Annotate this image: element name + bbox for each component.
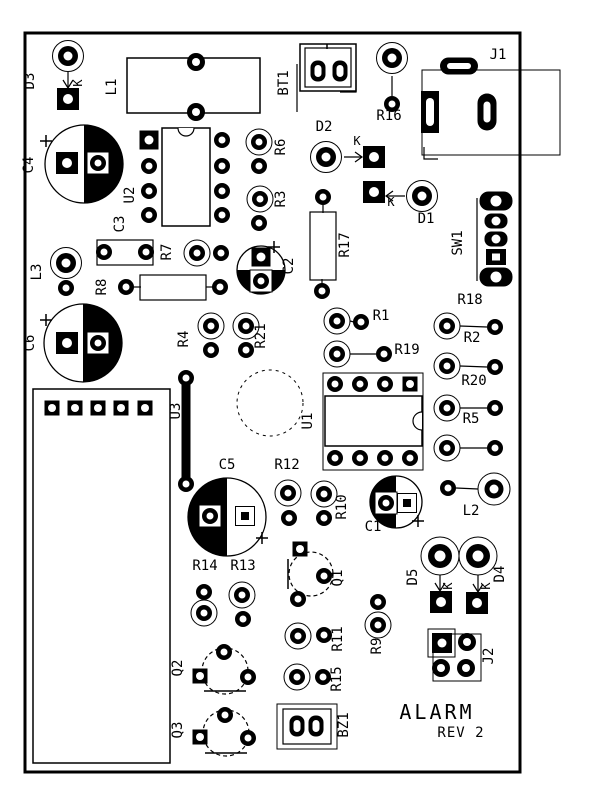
r17-body-outline (310, 212, 336, 280)
pad-hole (295, 596, 302, 603)
label-r8: R8 (94, 279, 110, 296)
label-r5: R5 (463, 411, 480, 427)
label-r2: R2 (464, 330, 481, 346)
label-c3: C3 (112, 216, 128, 233)
label-r12: R12 (274, 457, 299, 473)
pad-r13 (229, 582, 255, 608)
pad-hole (222, 712, 229, 719)
pad-r4 (203, 342, 219, 358)
label-d4: D4 (492, 566, 508, 583)
pad-hole (319, 288, 326, 295)
pad-hole (63, 285, 70, 292)
pad-hole (473, 551, 484, 562)
pad-r6 (246, 129, 272, 155)
pad-hole (258, 278, 265, 285)
c4-capacitor-body (40, 125, 123, 203)
pad-hole (332, 455, 339, 462)
label-u1: U1 (300, 413, 316, 430)
label-k: K (71, 79, 85, 87)
label-u3: U3 (168, 403, 184, 420)
pad-hole (219, 137, 226, 144)
pad-q1 (293, 542, 308, 557)
pad-hole (438, 639, 447, 648)
pad-hole (321, 491, 328, 498)
label-r10: R10 (334, 494, 350, 519)
pad-hole (95, 160, 102, 167)
pad-sw1 (486, 249, 506, 265)
pad-r8 (212, 279, 228, 295)
label-l3: L3 (29, 264, 45, 281)
u1-notch (413, 412, 422, 430)
pad-hole (63, 94, 73, 104)
pad-hole (383, 500, 390, 507)
pad-q2 (193, 669, 208, 684)
pad-hole (219, 163, 226, 170)
pad-hole (257, 253, 266, 262)
pad-u1 (327, 376, 343, 392)
r20-lead (460, 366, 487, 367)
pad-r1 (324, 308, 350, 334)
pad-hole (444, 445, 451, 452)
pad-r20 (434, 353, 460, 379)
label-r11: R11 (330, 626, 346, 651)
pcb-svg: D3KL1BT1J1R16D2KKD1SW1R18C4U2C3R6R3R7R17… (0, 0, 601, 796)
pad-relay (45, 401, 60, 416)
pad-hole (484, 102, 491, 123)
pad-hole (256, 139, 263, 146)
pad-hole (294, 720, 301, 732)
pad-d5 (421, 537, 459, 575)
pad-hole (245, 735, 252, 742)
pad-c2 (250, 270, 272, 292)
bz1-outer-outline (277, 704, 337, 749)
pad-j1 (478, 94, 497, 131)
j1-corner-mark (424, 147, 438, 159)
pad-c4 (56, 152, 78, 174)
r8-body-outline (140, 275, 206, 300)
label-c6: C6 (22, 335, 38, 352)
pad-j2 (458, 633, 476, 651)
pad-c6 (87, 332, 109, 354)
pad-hole (436, 597, 446, 607)
pad-j1 (421, 91, 439, 133)
pad-r2 (434, 313, 460, 339)
pad-sw1 (485, 232, 508, 247)
pad-hole (389, 101, 396, 108)
pad-bt1 (311, 61, 326, 82)
pad-hole (315, 65, 322, 77)
pad-q2 (240, 669, 256, 685)
pad-u3 (178, 476, 194, 492)
label-r14: R14 (192, 558, 217, 574)
bt1-outer-outline (300, 44, 356, 91)
pad-q3 (240, 730, 256, 746)
pad-hole (445, 485, 452, 492)
r2-lead (460, 326, 487, 327)
pad-u2 (141, 207, 157, 223)
pad-r12 (275, 480, 301, 506)
pad-d5 (430, 591, 452, 613)
pad-hole (321, 515, 328, 522)
pad-l3 (51, 248, 82, 279)
pad-r7 (184, 240, 210, 266)
pad-r21 (238, 342, 254, 358)
label-k: K (479, 582, 493, 590)
pad-hole (369, 152, 379, 162)
label-d1: D1 (418, 211, 435, 227)
pad-hole (256, 163, 263, 170)
pad-r5 (487, 400, 503, 416)
label-j1: J1 (490, 47, 507, 63)
pad-hole (183, 375, 190, 382)
pad-hole (382, 381, 389, 388)
label-r18: R18 (457, 292, 482, 308)
pad-sw1 (485, 214, 508, 229)
label-l1: L1 (104, 79, 120, 96)
pad-relay (91, 401, 106, 416)
pad-r16 (377, 43, 408, 74)
pad-hole (218, 250, 225, 257)
pad-hole (196, 672, 204, 680)
pad-hole (243, 323, 250, 330)
pad-bz1 (309, 716, 324, 737)
pad-hole (64, 52, 73, 61)
pad-hole (462, 664, 470, 672)
pad-hole (256, 220, 263, 227)
pad-hole (123, 284, 130, 291)
pad-hole (337, 65, 344, 77)
label-r19: R19 (394, 342, 419, 358)
pad-r-extra (434, 435, 460, 461)
pad-c5 (236, 507, 255, 526)
label-q2: Q2 (170, 660, 186, 677)
pad-hole (141, 404, 149, 412)
pad-hole (490, 485, 499, 494)
pad-hole (240, 616, 247, 623)
pad-q3 (217, 707, 233, 723)
pad-d3 (57, 88, 79, 110)
pad-c2 (252, 248, 271, 267)
pad-c5 (199, 505, 221, 527)
pad-hole (208, 347, 215, 354)
pad-c4 (87, 152, 109, 174)
pad-hole (62, 338, 72, 348)
pad-u1 (377, 450, 393, 466)
pad-r1 (353, 314, 369, 330)
pad-hole (491, 272, 502, 283)
pad-hole (313, 720, 320, 732)
pad-hole (375, 622, 382, 629)
pad-relay (138, 401, 153, 416)
pad-hole (426, 98, 434, 126)
pad-body (241, 512, 249, 520)
bt1-corner-mark (340, 80, 356, 92)
pad-hole (492, 254, 500, 261)
pad-hole (95, 340, 102, 347)
pad-hole (321, 632, 328, 639)
label-c1: C1 (365, 519, 382, 535)
pad-bz1 (290, 716, 305, 737)
pad-hole (239, 592, 246, 599)
pad-hole (257, 196, 264, 203)
u2-notch (178, 128, 194, 136)
pad-sw1 (480, 192, 513, 211)
pad-hole (472, 598, 482, 608)
pad-hole (201, 589, 208, 596)
label-sw1: SW1 (450, 230, 466, 255)
pad-hole (295, 633, 302, 640)
pad-j2 (432, 633, 452, 653)
label-d5: D5 (405, 569, 421, 586)
pad-hole (296, 545, 304, 553)
pad-hole (447, 63, 471, 69)
label-c5: C5 (219, 457, 236, 473)
pad-q1 (290, 591, 306, 607)
label-k: K (441, 582, 455, 590)
pad-d1 (363, 181, 385, 203)
pad-u2 (214, 207, 230, 223)
pad-hole (334, 318, 341, 325)
pad-u1 (352, 376, 368, 392)
pad-r10 (316, 510, 332, 526)
pad-hole (358, 319, 365, 326)
c6-capacitor-body (40, 304, 122, 382)
pad-u3 (178, 370, 194, 386)
pad-hole (208, 323, 215, 330)
pad-r7 (213, 245, 229, 261)
pad-hole (48, 404, 56, 412)
pad-hole (194, 250, 201, 257)
pad-r-extra (487, 440, 503, 456)
pad-hole (321, 573, 328, 580)
pad-hole (437, 664, 445, 672)
label-l2: L2 (463, 503, 480, 519)
pad-hole (406, 380, 414, 388)
pad-hole (192, 58, 200, 66)
pad-hole (369, 187, 379, 197)
pad-hole (418, 192, 427, 201)
pad-d4 (466, 592, 488, 614)
pad-relay (114, 401, 129, 416)
pad-hole (62, 158, 72, 168)
pad-hole (219, 212, 226, 219)
pad-u1 (327, 450, 343, 466)
label-r15: R15 (329, 666, 345, 691)
label-r21: R21 (253, 323, 269, 348)
pad-u2 (214, 132, 230, 148)
pad-r14 (191, 600, 217, 626)
pad-hole (407, 455, 414, 462)
pad-hole (286, 515, 293, 522)
pad-r2 (487, 319, 503, 335)
pad-hole (375, 599, 382, 606)
pad-q2 (216, 644, 232, 660)
pad-u1 (352, 450, 368, 466)
pad-u2 (141, 158, 157, 174)
pad-u1 (403, 377, 418, 392)
pad-hole (320, 674, 327, 681)
pad-r14 (196, 584, 212, 600)
pad-d2 (363, 146, 385, 168)
pad-hole (492, 324, 499, 331)
pad-hole (146, 188, 153, 195)
label-bt1: BT1 (276, 70, 292, 95)
pad-hole (71, 404, 79, 412)
pad-hole (196, 733, 204, 741)
pad-l2 (440, 480, 456, 496)
pad-hole (192, 108, 200, 116)
u2-body-outline (162, 128, 210, 226)
relay-body-outline (33, 389, 170, 763)
label-q3: Q3 (170, 722, 186, 739)
pad-r5 (434, 395, 460, 421)
pad-hole (492, 217, 501, 226)
pad-hole (444, 363, 451, 370)
label-k: K (387, 195, 395, 209)
pad-hole (207, 513, 214, 520)
label-r1: R1 (373, 308, 390, 324)
label-r6: R6 (273, 139, 289, 156)
pad-hole (492, 405, 499, 412)
pad-hole (334, 351, 341, 358)
label-r3: R3 (273, 191, 289, 208)
pad-r19 (324, 341, 350, 367)
pad-r4 (198, 313, 224, 339)
pad-c3 (138, 244, 154, 260)
pad-hole (94, 404, 102, 412)
label-j2: J2 (481, 648, 497, 665)
pad-r13 (235, 611, 251, 627)
u1-body-outline (325, 396, 422, 446)
pad-hole (117, 404, 125, 412)
pad-hole (201, 610, 208, 617)
label-rev-2: REV 2 (437, 725, 484, 741)
pad-u2 (141, 183, 157, 199)
label-c4: C4 (21, 157, 37, 174)
pad-hole (143, 249, 150, 256)
pad-hole (357, 381, 364, 388)
pad-hole (219, 188, 226, 195)
pad-c1 (375, 492, 397, 514)
pad-c6 (56, 332, 78, 354)
label-r20: R20 (461, 373, 486, 389)
pad-hole (245, 674, 252, 681)
pad-hole (492, 364, 499, 371)
pad-hole (294, 674, 301, 681)
pad-hole (145, 136, 154, 145)
pad-hole (382, 455, 389, 462)
pad-hole (381, 351, 388, 358)
pad-hole (146, 163, 153, 170)
pad-l2 (478, 473, 510, 505)
pad-u1 (377, 376, 393, 392)
pad-hole (183, 481, 190, 488)
pad-q3 (193, 730, 208, 745)
pad-r19 (376, 346, 392, 362)
pad-hole (243, 347, 250, 354)
pad-r9 (370, 594, 386, 610)
pad-d3 (53, 41, 84, 72)
pad-hole (285, 490, 292, 497)
pad-hole (357, 455, 364, 462)
pad-j2 (432, 659, 450, 677)
l2-lead (456, 488, 478, 489)
label-d2: D2 (316, 119, 333, 135)
u1-ghost-circle (237, 370, 303, 436)
pad-hole (492, 235, 501, 244)
pad-hole (146, 212, 153, 219)
pad-d2 (311, 142, 342, 173)
pad-hole (322, 153, 331, 162)
pad-r18 (480, 268, 513, 287)
pad-r17 (315, 189, 331, 205)
pad-r20 (487, 359, 503, 375)
pad-hole (101, 249, 108, 256)
label-r17: R17 (337, 232, 353, 257)
label-c2: C2 (281, 258, 297, 275)
pad-hole (491, 196, 502, 207)
pad-hole (444, 405, 451, 412)
pad-relay (68, 401, 83, 416)
pad-c1 (398, 494, 417, 513)
pad-u2 (140, 131, 159, 150)
pad-j1 (440, 58, 478, 75)
pad-u1 (402, 450, 418, 466)
pad-hole (463, 638, 471, 646)
label-r13: R13 (230, 558, 255, 574)
pad-u2 (214, 183, 230, 199)
pcb-layout: D3KL1BT1J1R16D2KKD1SW1R18C4U2C3R6R3R7R17… (0, 0, 601, 796)
label-r9: R9 (369, 638, 385, 655)
pad-r11 (285, 623, 311, 649)
pad-r3 (247, 186, 273, 212)
pad-hole (435, 551, 446, 562)
label-d3: D3 (22, 73, 38, 90)
label-u2: U2 (122, 187, 138, 204)
pad-c3 (96, 244, 112, 260)
pad-hole (221, 649, 228, 656)
pad-body (403, 499, 411, 507)
pad-l1 (187, 53, 205, 71)
pad-hole (388, 54, 397, 63)
pad-j2 (457, 659, 475, 677)
pad-r17 (314, 283, 330, 299)
pad-hole (332, 381, 339, 388)
pad-r6 (251, 158, 267, 174)
pad-l3 (58, 280, 74, 296)
pad-r3 (251, 215, 267, 231)
label-r7: R7 (159, 244, 175, 261)
pad-hole (444, 323, 451, 330)
pad-r12 (281, 510, 297, 526)
pad-r9 (365, 612, 391, 638)
pad-r15 (284, 664, 310, 690)
label-bz1: BZ1 (336, 712, 352, 737)
pad-r8 (118, 279, 134, 295)
pad-hole (492, 445, 499, 452)
label-k: K (353, 134, 361, 148)
label-r16: R16 (376, 108, 401, 124)
pad-l1 (187, 103, 205, 121)
pad-bt1 (333, 61, 348, 82)
pad-u2 (214, 158, 230, 174)
label-q1: Q1 (330, 570, 346, 587)
label-alarm: ALARM (399, 700, 474, 724)
pad-hole (217, 284, 224, 291)
pad-hole (320, 194, 327, 201)
pad-hole (62, 259, 71, 268)
label-r4: R4 (176, 331, 192, 348)
